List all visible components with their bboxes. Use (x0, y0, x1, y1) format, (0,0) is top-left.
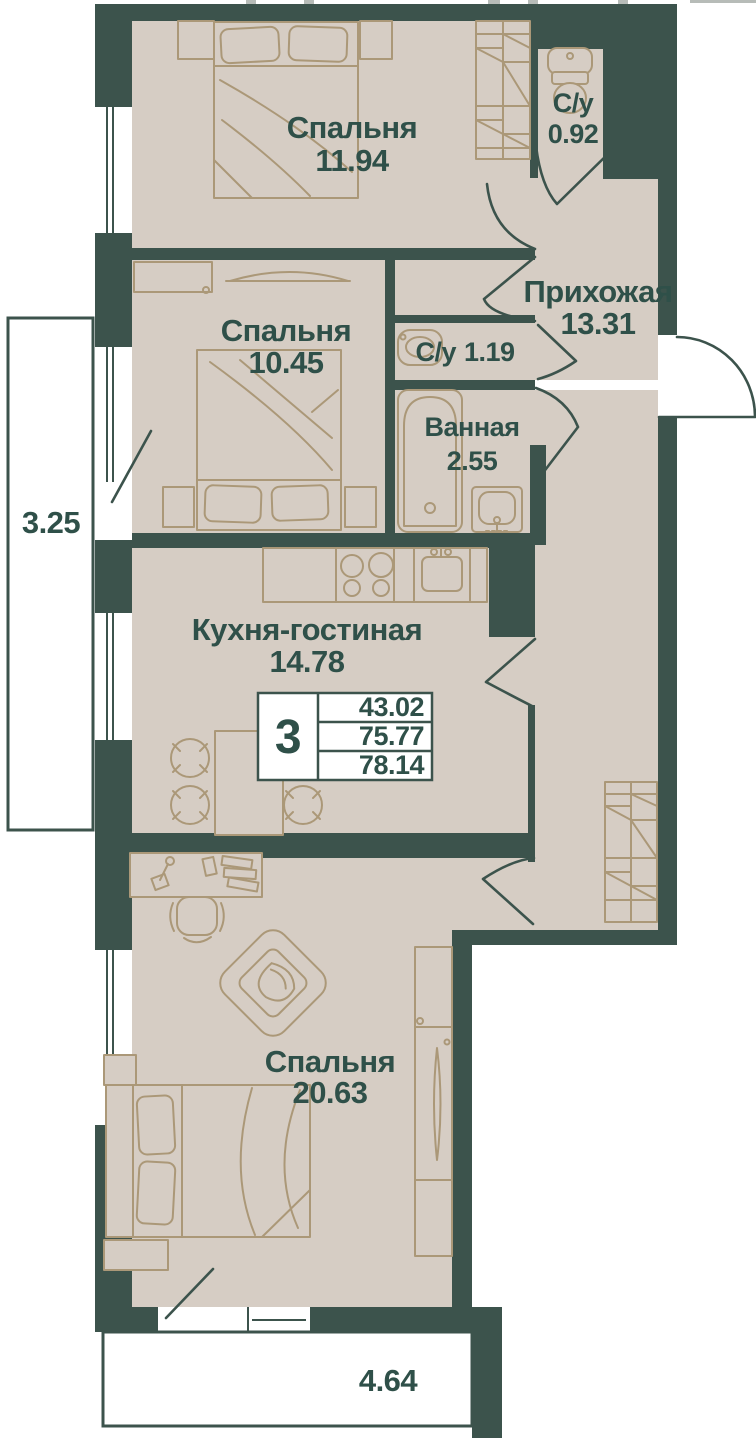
wardrobe-tall (476, 21, 530, 159)
room-area-bedroom3: 20.63 (292, 1075, 367, 1110)
room-label-hallway: Прихожая (524, 274, 673, 309)
rooms-count: 3 (275, 711, 301, 764)
wardrobe-right (415, 947, 452, 1256)
nightstand (163, 487, 194, 527)
window-bedroom2 (95, 347, 132, 465)
pillow (137, 1095, 176, 1155)
hallway-wardrobe (605, 782, 657, 922)
summary-box: 3 43.02 75.77 78.14 (258, 692, 432, 780)
room-area-bedroom2: 10.45 (248, 345, 323, 380)
room-area-kitchen: 14.78 (269, 644, 344, 679)
nightstand (360, 21, 392, 59)
sink (548, 48, 592, 74)
room-area-hallway: 13.31 (560, 306, 635, 341)
nightstand (104, 1055, 136, 1085)
nightstand (345, 487, 376, 527)
pillow (204, 485, 261, 523)
room-label-bedroom2: Спальня (221, 313, 351, 348)
room-area-wc-top: 0.92 (548, 119, 599, 149)
floor-plan-svg: 3 43.02 75.77 78.14 Спальня 11.94 С/у 0.… (0, 0, 756, 1438)
total-area: 78.14 (359, 750, 425, 780)
washbasin (472, 487, 522, 532)
floor-plan: 3 43.02 75.77 78.14 Спальня 11.94 С/у 0.… (0, 0, 756, 1438)
pillow (220, 27, 280, 64)
room-label-wc-small: С/у1.19 (415, 337, 515, 367)
furniture-hallway (605, 782, 657, 922)
balcony-door-bedroom3 (158, 1307, 310, 1332)
nightstand (104, 1240, 168, 1270)
dimension-ticks (246, 0, 756, 4)
room-label-kitchen: Кухня-гостиная (192, 612, 422, 647)
living-area: 43.02 (359, 692, 424, 722)
room-area-bedroom1: 11.94 (315, 143, 390, 178)
wardrobe (178, 21, 214, 59)
window-bedroom1 (95, 107, 132, 233)
room-label-wc-top: С/у (553, 88, 594, 118)
balcony-bottom-area: 4.64 (359, 1363, 419, 1398)
room-label-bedroom3: Спальня (265, 1044, 395, 1079)
entry-door (659, 337, 755, 417)
room-label-bedroom1: Спальня (287, 110, 417, 145)
window-kitchen (95, 613, 132, 740)
balcony-left-area: 3.25 (22, 505, 81, 540)
balcony-left (8, 318, 93, 830)
dresser (134, 262, 212, 292)
room-area-bathroom: 2.55 (447, 446, 498, 476)
pillow (136, 1161, 175, 1225)
apartment-area: 75.77 (359, 721, 424, 751)
pillow (271, 485, 328, 521)
pillow (288, 26, 347, 62)
room-label-bathroom: Ванная (425, 412, 520, 442)
